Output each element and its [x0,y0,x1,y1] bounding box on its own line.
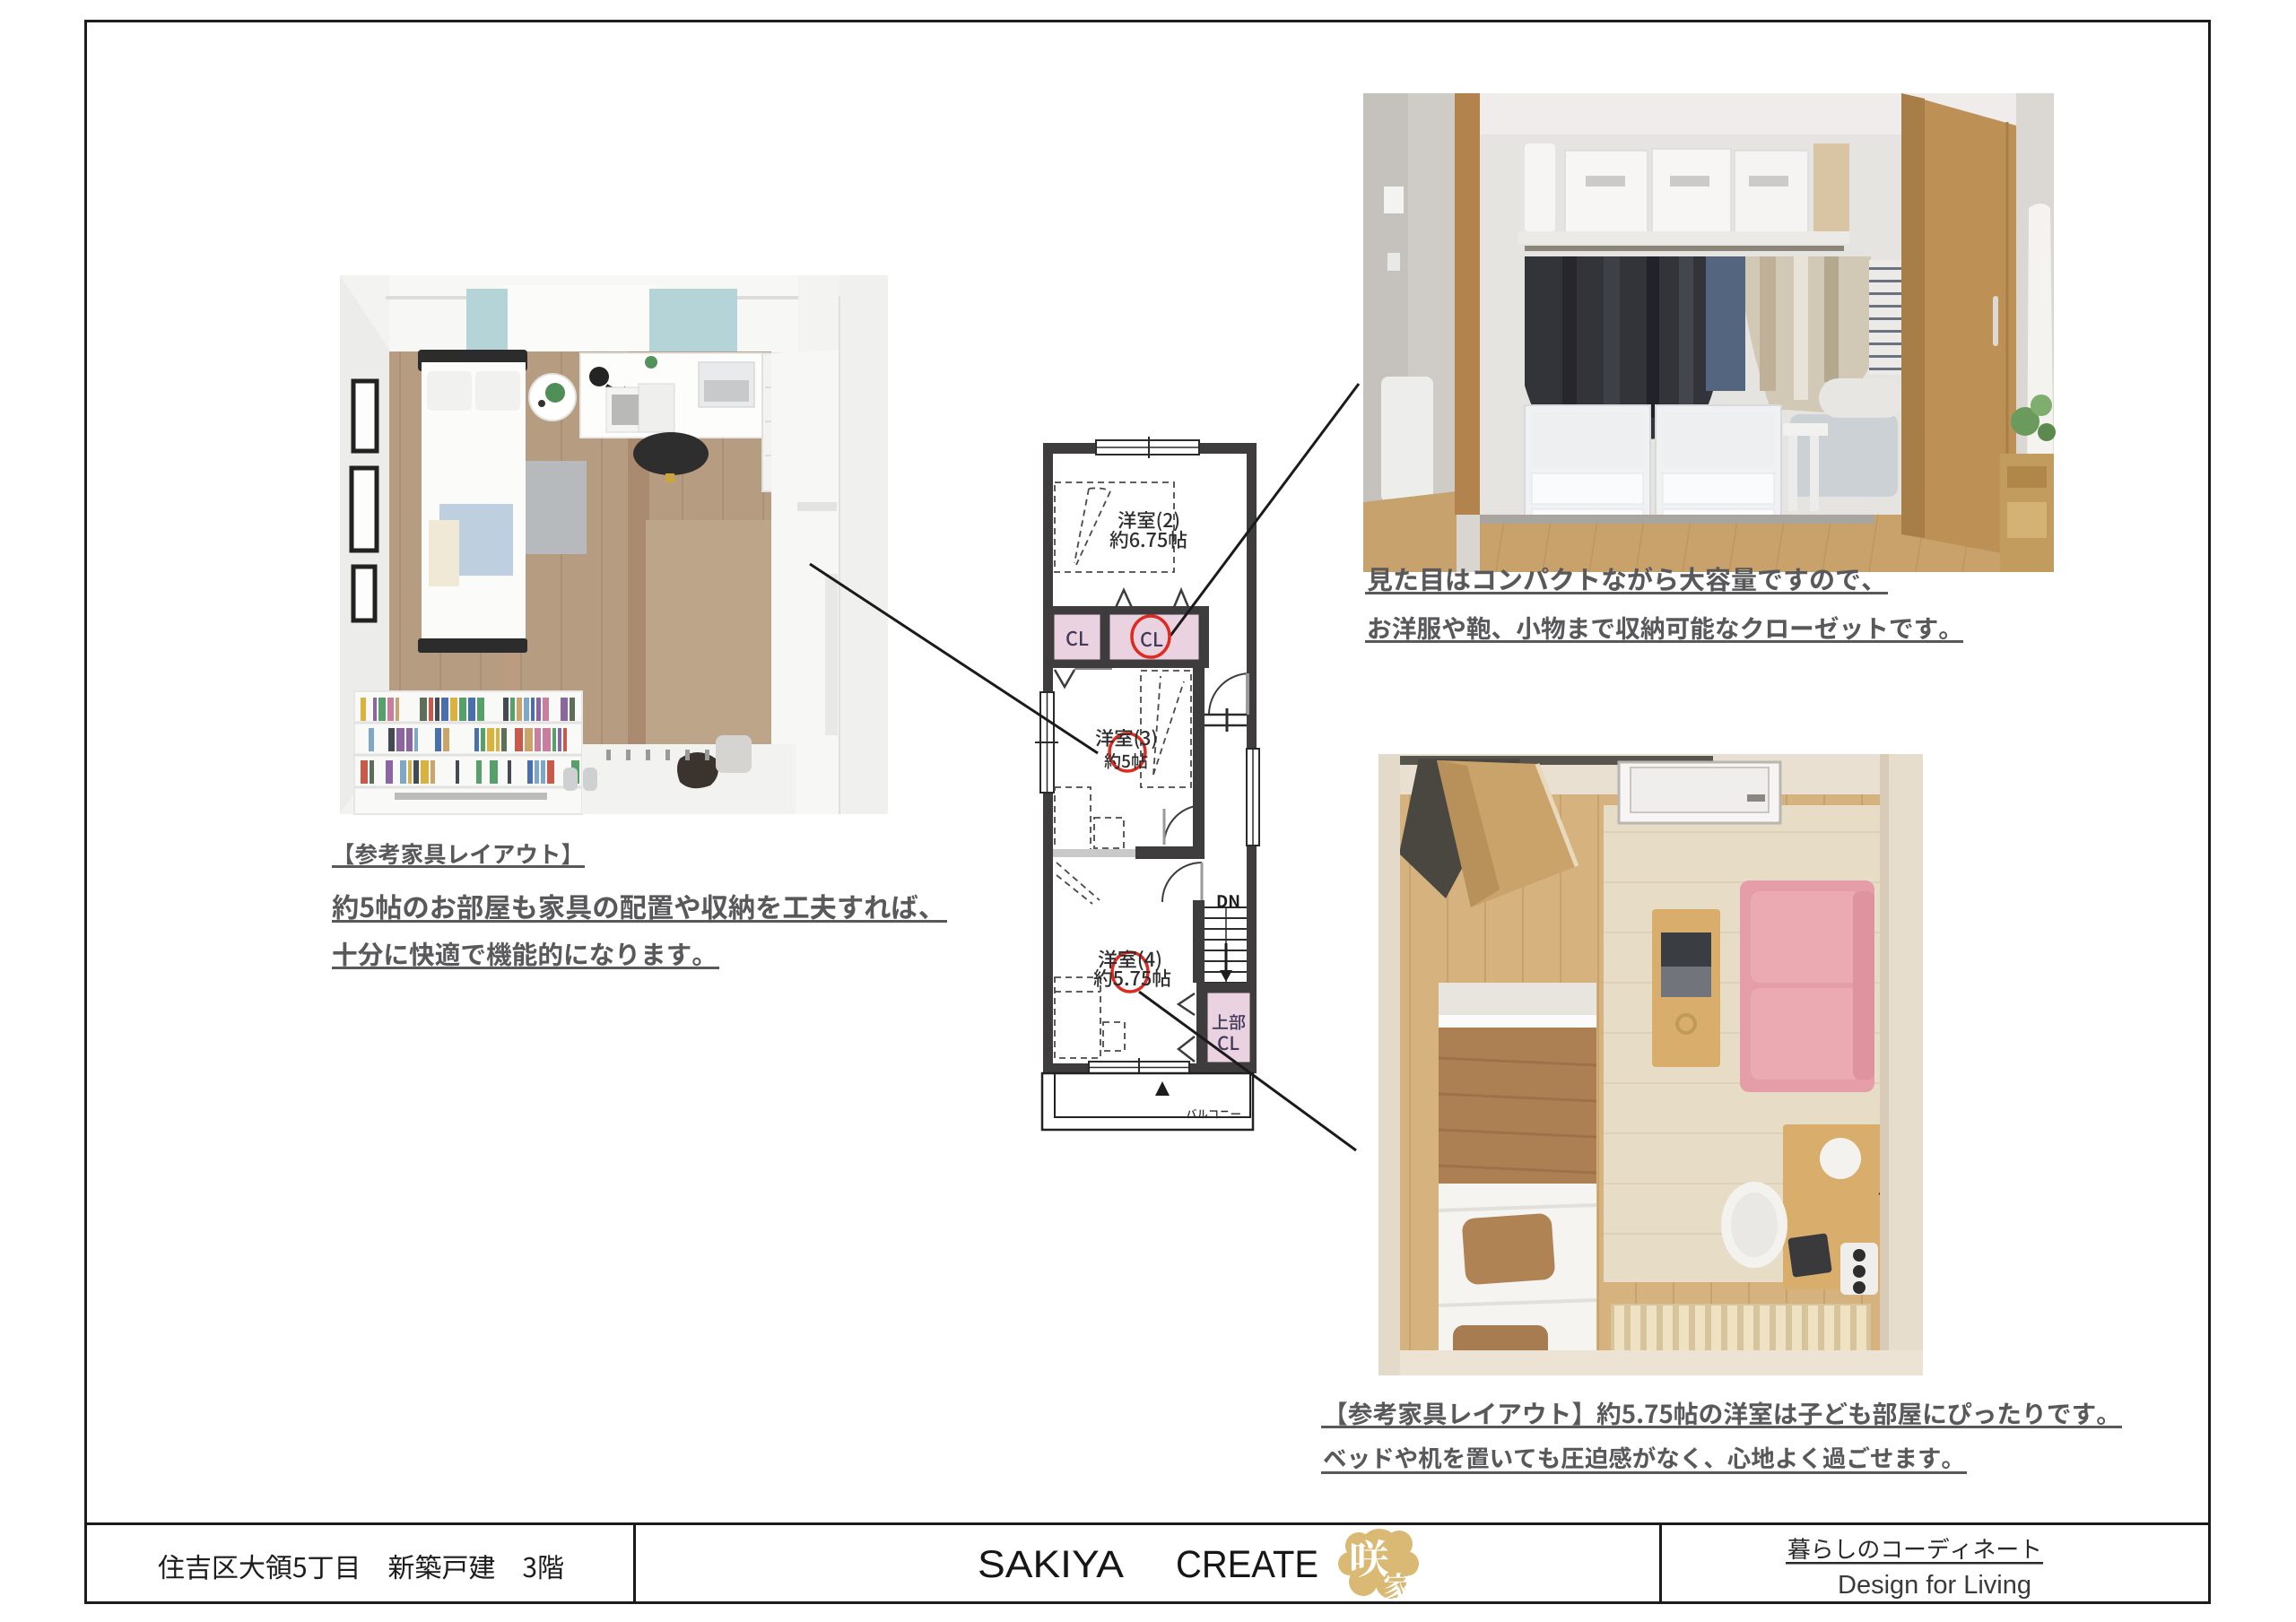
svg-text:Design for Living: Design for Living [1838,1571,2031,1600]
svg-text:CREATE: CREATE [1176,1543,1318,1586]
svg-text:SAKIYA: SAKIYA [978,1543,1124,1586]
